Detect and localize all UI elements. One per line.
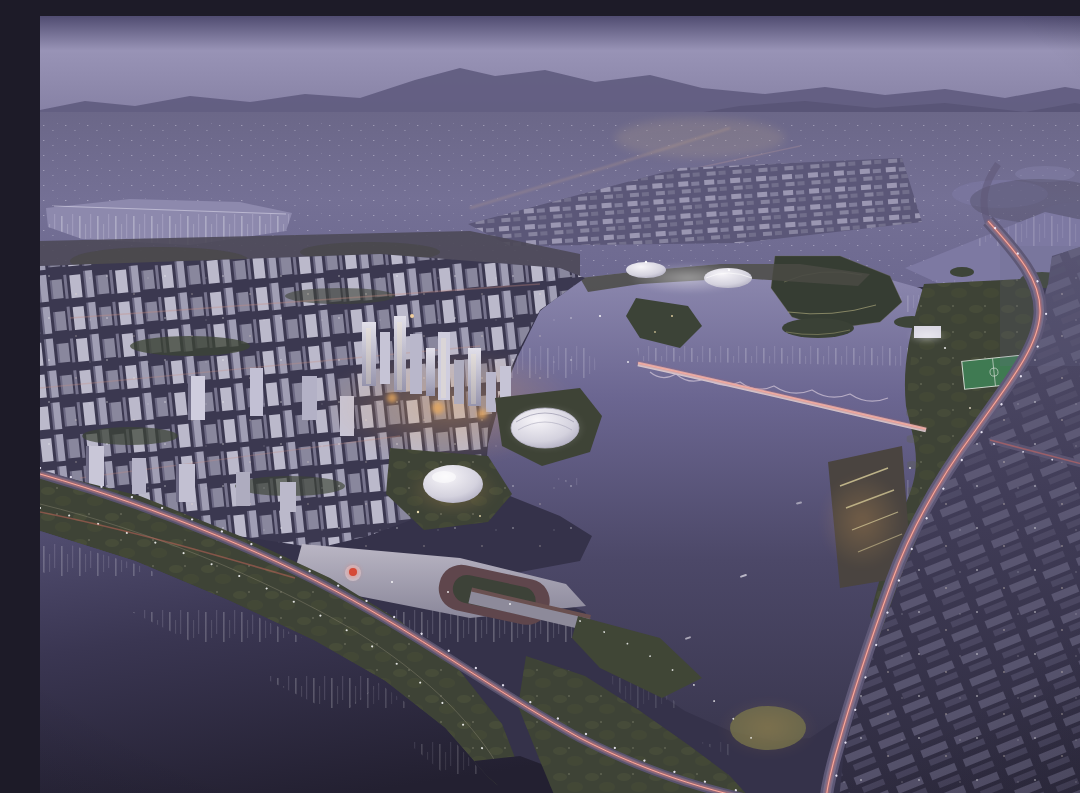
islet — [950, 267, 974, 277]
scene-canvas — [40, 16, 1080, 793]
north-venue-roof — [704, 268, 752, 288]
rendering-image — [40, 16, 1080, 793]
north-venue-roof — [626, 262, 666, 278]
island-mid — [782, 318, 854, 338]
